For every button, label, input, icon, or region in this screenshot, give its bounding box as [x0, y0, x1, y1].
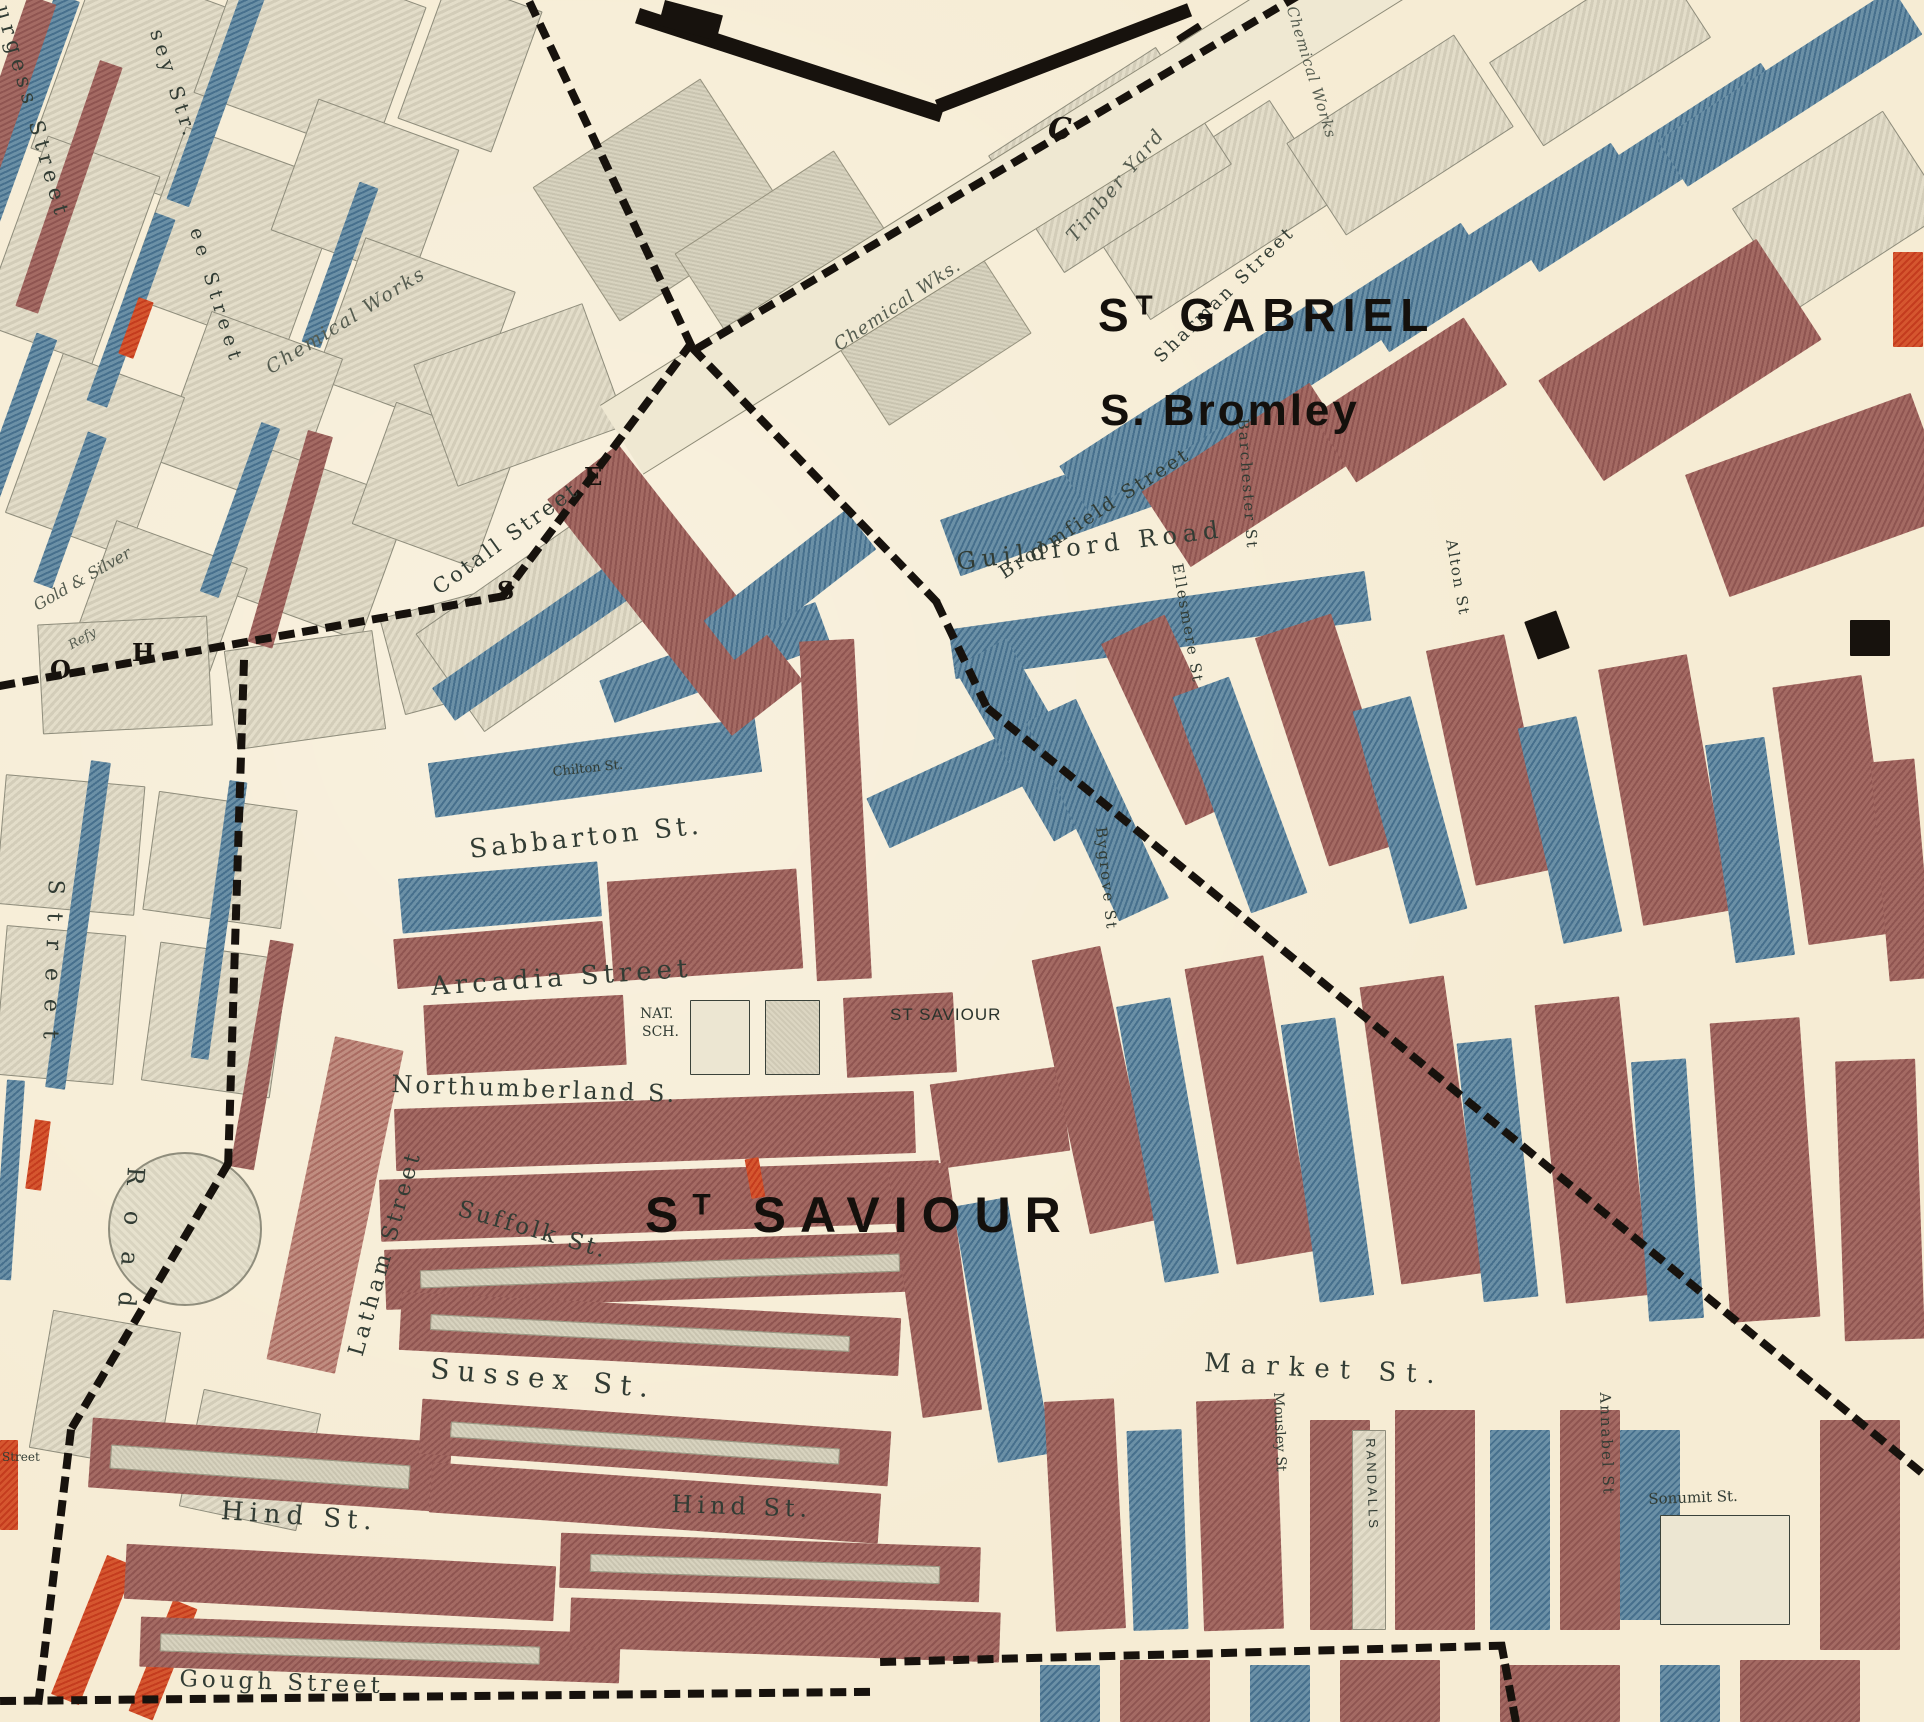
district-label-st-gabriel: ST GABRIEL	[1098, 288, 1435, 342]
place-label-randalls: RANDALLS	[1363, 1438, 1381, 1531]
district-label-st-gabriel-sup: T	[1136, 290, 1160, 321]
school-building	[690, 1000, 750, 1075]
building-block	[799, 639, 872, 981]
building-block	[1893, 252, 1923, 347]
building-block	[423, 995, 626, 1075]
street-label-annabel: Annabel St	[1596, 1392, 1618, 1496]
almshouse-building	[1660, 1515, 1790, 1625]
church-building	[765, 1000, 820, 1075]
street-label-market: Market St.	[1203, 1348, 1445, 1391]
district-label-st-saviour-name: SAVIOUR	[753, 1187, 1075, 1243]
building-block	[1535, 996, 1651, 1303]
street-label-alton: Alton St	[1442, 538, 1473, 617]
building-block	[1340, 1660, 1440, 1722]
building-block	[1395, 1410, 1475, 1630]
boundary-letter-e: E	[584, 462, 602, 491]
boundary-letter-o: O	[50, 655, 71, 684]
building-block	[1850, 620, 1890, 656]
building-block	[1685, 393, 1924, 597]
street-label-northumberland: Northumberland S.	[391, 1070, 678, 1108]
street-label-hind-east: Hind St.	[671, 1490, 813, 1523]
street-label-sonumit: Sonumit St.	[1648, 1487, 1738, 1508]
building-block	[25, 1119, 51, 1191]
building-block	[1835, 1059, 1924, 1342]
building-block	[930, 1066, 1071, 1168]
street-label-mousley: Mousley St	[1270, 1392, 1289, 1472]
street-label-street-frag2: Street	[2, 1450, 40, 1464]
building-block	[224, 630, 386, 750]
building-block	[1040, 1665, 1100, 1722]
district-label-st-gabriel-prefix: S	[1098, 289, 1136, 341]
building-block	[1250, 1665, 1310, 1722]
building-block	[1710, 1017, 1821, 1323]
building-block	[1120, 1660, 1210, 1722]
building-block	[0, 1080, 25, 1281]
building-block	[1490, 1430, 1550, 1630]
building-block	[1660, 1665, 1720, 1722]
street-label-sabbarton: Sabbarton St.	[468, 811, 704, 865]
district-label-st-saviour-prefix: S	[645, 1187, 692, 1243]
canal-letter-c: C	[1048, 112, 1072, 147]
district-label-s-bromley: S. Bromley	[1100, 386, 1360, 436]
boundary-letter-h: H	[132, 638, 155, 667]
map-canvas[interactable]: S E H O C Burgess Street sey Str. ee Str…	[0, 0, 1924, 1722]
district-label-st-gabriel-name: GABRIEL	[1179, 289, 1435, 341]
building-block	[51, 1555, 135, 1705]
building-block	[569, 1598, 1000, 1663]
building-block	[1127, 1429, 1189, 1631]
district-label-st-saviour: ST SAVIOUR	[645, 1186, 1075, 1244]
building-block	[1044, 1398, 1126, 1631]
district-label-st-saviour-sup: T	[692, 1188, 724, 1221]
boundary-line	[0, 1688, 870, 1705]
boundary-letter-s: S	[497, 576, 514, 605]
place-label-nat-sch-line2: SCH.	[642, 1024, 679, 1040]
place-label-nat-sch-line1: NAT.	[640, 1006, 673, 1022]
place-label-st-saviour-church: ST SAVIOUR	[890, 1005, 1001, 1025]
building-block	[1524, 610, 1570, 659]
building-block	[1740, 1660, 1860, 1722]
building-block	[1820, 1420, 1900, 1650]
